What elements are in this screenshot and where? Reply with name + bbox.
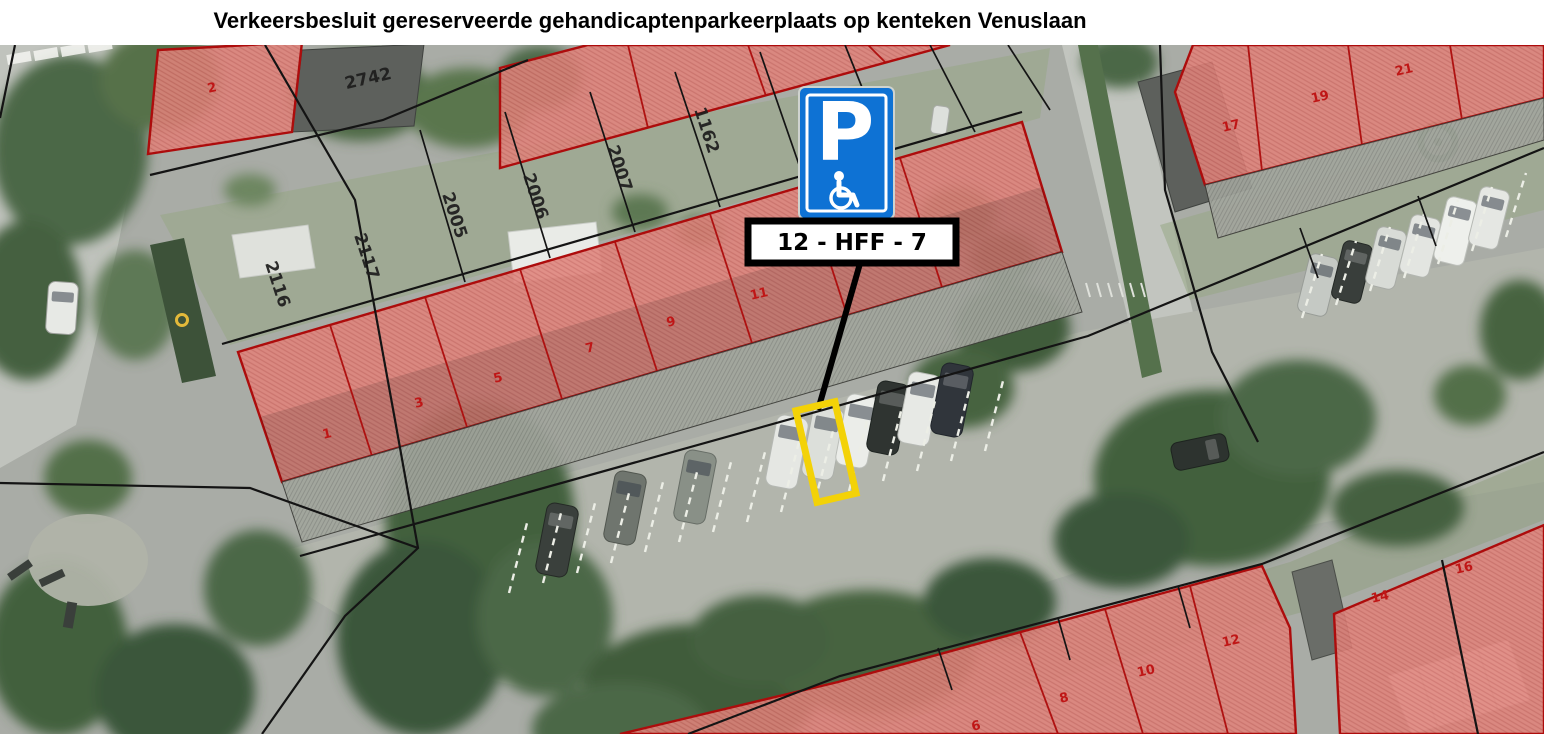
license-plate-label: 12 - HFF - 7 [748, 221, 956, 263]
aerial-map: 2742 2005 2006 2007 1162 2117 2116 2 1 3… [0, 0, 1544, 734]
title-bar: Verkeersbesluit gereserveerde gehandicap… [0, 0, 1544, 45]
parking-letter: P [816, 86, 875, 179]
screenshot: 2742 2005 2006 2007 1162 2117 2116 2 1 3… [0, 0, 1544, 734]
disabled-parking-sign: P [799, 86, 894, 219]
car [45, 281, 79, 335]
car [930, 105, 950, 135]
license-plate-text: 12 - HFF - 7 [777, 230, 927, 256]
page-title: Verkeersbesluit gereserveerde gehandicap… [213, 8, 1086, 33]
